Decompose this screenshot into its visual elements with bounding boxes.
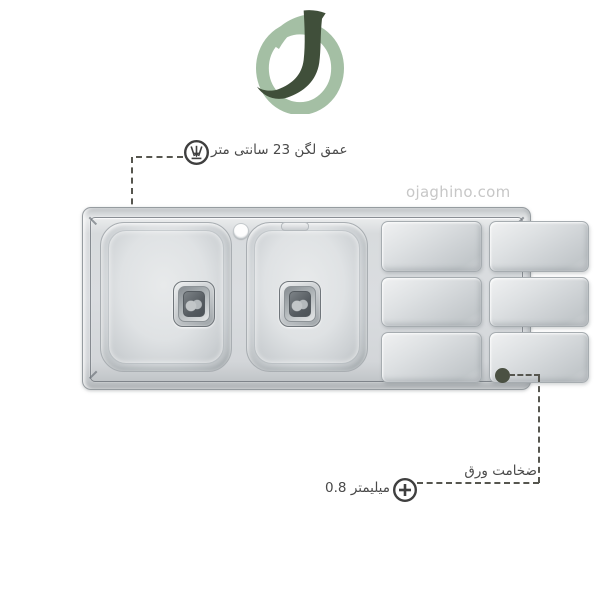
thickness-annotation-label: ضخامت ورق — [437, 463, 537, 481]
thickness-annotation-value: 0.8 میلیمتر — [300, 480, 390, 498]
drainboard — [381, 221, 589, 383]
drain-right — [279, 281, 321, 327]
drainboard-square — [489, 277, 590, 328]
depth-annotation-text: عمق لگن 23 سانتی متر — [211, 142, 348, 160]
plus-circle-icon — [392, 477, 418, 503]
drainboard-square — [381, 221, 482, 272]
drainboard-square — [489, 221, 590, 272]
depth-leader-line-horizontal — [136, 156, 183, 158]
drain-left — [173, 281, 215, 327]
thickness-leader-line-horizontal-bottom — [417, 482, 539, 484]
brand-logo-icon — [256, 6, 344, 114]
thickness-anchor-dot — [495, 368, 510, 383]
thickness-leader-line-horizontal-top — [509, 374, 540, 376]
drainboard-square — [381, 277, 482, 328]
thickness-leader-line-vertical — [538, 376, 540, 483]
product-infographic: عمق لگن 23 سانتی متر ojaghino.com — [0, 0, 600, 600]
drain-strainer — [289, 291, 311, 317]
depth-gauge-icon — [183, 139, 210, 166]
drainboard-square — [381, 332, 482, 383]
faucet-hole — [233, 223, 249, 239]
site-watermark: ojaghino.com — [406, 183, 511, 201]
sink-image — [82, 207, 531, 390]
drain-strainer — [183, 291, 205, 317]
overflow-slot — [281, 222, 309, 231]
